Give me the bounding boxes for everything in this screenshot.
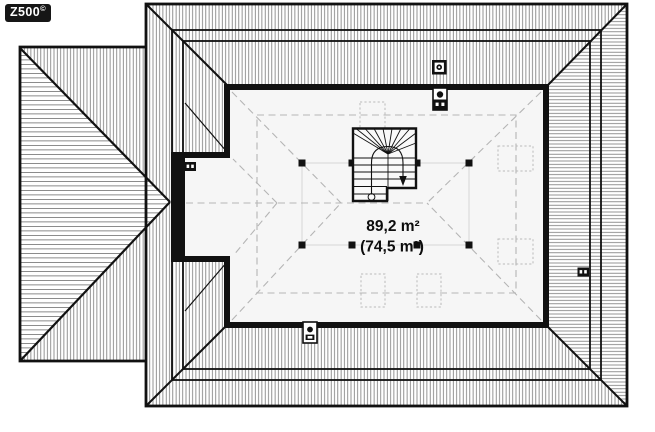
wall-notch-top xyxy=(178,152,230,158)
wall-right xyxy=(543,84,549,328)
area-usable-label: (74,5 m²) xyxy=(360,239,424,256)
roof-plan-drawing: 89,2 m² (74,5 m²) xyxy=(0,0,655,432)
roof-slope-south xyxy=(146,326,627,406)
roof-slope-north xyxy=(146,4,627,85)
wall-notch-left xyxy=(171,152,185,262)
wall-notch-bottom xyxy=(178,256,230,262)
wall-top xyxy=(224,84,549,90)
chimney-icon xyxy=(432,60,447,75)
column xyxy=(349,242,356,249)
vent-bottom-icon xyxy=(303,322,317,343)
wall-left-lower xyxy=(224,262,230,328)
column xyxy=(299,160,306,167)
room-floor xyxy=(178,84,549,328)
attic-room xyxy=(171,84,549,328)
copyright-icon: © xyxy=(40,4,46,13)
vent-top-icon xyxy=(433,88,447,110)
vent-right-icon xyxy=(578,268,590,277)
column xyxy=(466,242,473,249)
column xyxy=(466,160,473,167)
z500-logo: Z500© xyxy=(5,4,51,22)
floor-plan-page: 89,2 m² (74,5 m²) Z500© xyxy=(0,0,655,432)
wall-bottom xyxy=(224,322,549,328)
z500-logo-text: Z500 xyxy=(10,5,40,19)
vent-left-icon xyxy=(185,162,197,171)
area-total-label: 89,2 m² xyxy=(366,218,419,235)
column xyxy=(299,242,306,249)
wall-left-upper xyxy=(224,84,230,158)
